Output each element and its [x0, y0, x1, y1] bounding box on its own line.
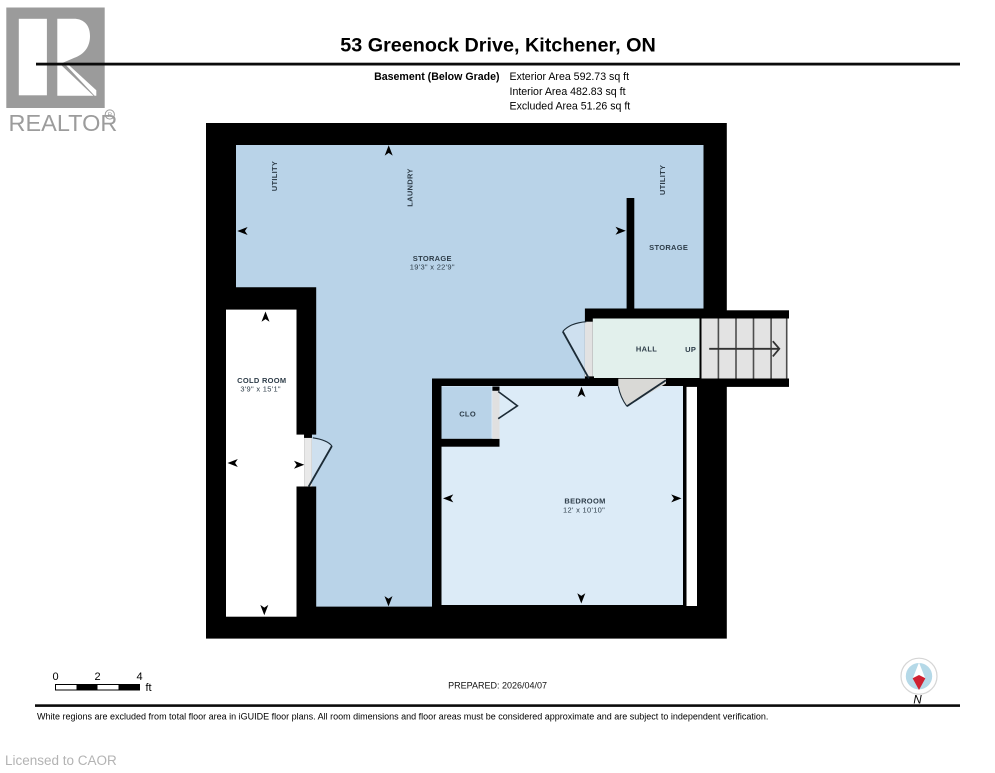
svg-text:R: R — [107, 112, 112, 119]
svg-text:53 Greenock Drive, Kitchener,: 53 Greenock Drive, Kitchener, ON — [340, 35, 656, 57]
svg-text:STORAGE: STORAGE — [649, 243, 688, 252]
svg-text:CLO: CLO — [459, 409, 476, 418]
svg-text:BEDROOM: BEDROOM — [564, 496, 605, 505]
svg-text:Interior Area 482.83 sq ft: Interior Area 482.83 sq ft — [510, 86, 626, 98]
svg-text:0: 0 — [52, 671, 58, 683]
svg-text:White regions are excluded fro: White regions are excluded from total fl… — [37, 712, 768, 722]
svg-text:12' x 10'10": 12' x 10'10" — [563, 506, 605, 515]
svg-text:Basement (Below Grade): Basement (Below Grade) — [374, 71, 499, 83]
svg-text:REALTOR: REALTOR — [9, 110, 118, 136]
svg-text:2: 2 — [94, 671, 100, 683]
svg-text:COLD ROOM: COLD ROOM — [237, 376, 286, 385]
svg-text:UTILITY: UTILITY — [270, 161, 279, 191]
svg-text:4: 4 — [136, 671, 142, 683]
svg-text:19'3" x 22'9": 19'3" x 22'9" — [410, 262, 455, 271]
svg-text:Licensed to CAOR: Licensed to CAOR — [5, 753, 117, 768]
svg-text:UTILITY: UTILITY — [658, 165, 667, 195]
svg-text:3'9" x 15'1": 3'9" x 15'1" — [240, 385, 281, 394]
svg-text:PREPARED: 2026/04/07: PREPARED: 2026/04/07 — [448, 680, 547, 690]
svg-text:ft: ft — [146, 682, 152, 694]
svg-text:HALL: HALL — [636, 345, 657, 354]
svg-text:Exterior Area 592.73 sq ft: Exterior Area 592.73 sq ft — [510, 71, 630, 83]
svg-text:LAUNDRY: LAUNDRY — [405, 168, 414, 207]
svg-text:UP: UP — [685, 345, 696, 354]
svg-text:Excluded Area 51.26 sq ft: Excluded Area 51.26 sq ft — [510, 101, 631, 113]
